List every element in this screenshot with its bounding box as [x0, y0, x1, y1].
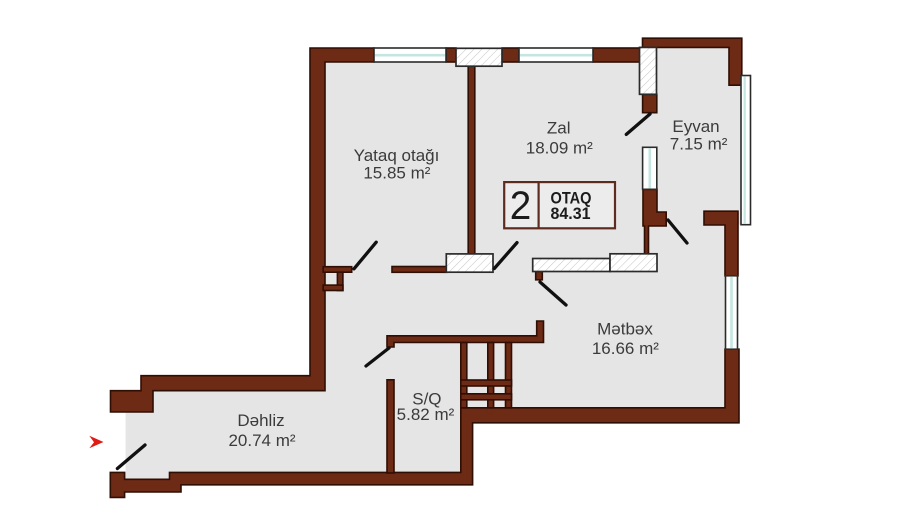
svg-text:7.15 m²: 7.15 m²: [670, 135, 728, 154]
svg-text:16.66 m²: 16.66 m²: [592, 339, 659, 358]
svg-text:Mətbəx: Mətbəx: [597, 320, 653, 339]
svg-text:15.85 m²: 15.85 m²: [363, 164, 430, 183]
svg-text:Eyvan: Eyvan: [672, 117, 719, 136]
svg-text:Yataq otağı: Yataq otağı: [354, 146, 440, 165]
svg-text:Zal: Zal: [547, 119, 571, 138]
svg-text:18.09 m²: 18.09 m²: [526, 138, 593, 157]
svg-text:5.82 m²: 5.82 m²: [397, 405, 455, 424]
svg-text:2: 2: [510, 184, 532, 228]
svg-text:84.31: 84.31: [551, 204, 591, 223]
svg-text:Dəhliz: Dəhliz: [237, 411, 284, 430]
svg-text:20.74 m²: 20.74 m²: [228, 431, 295, 450]
